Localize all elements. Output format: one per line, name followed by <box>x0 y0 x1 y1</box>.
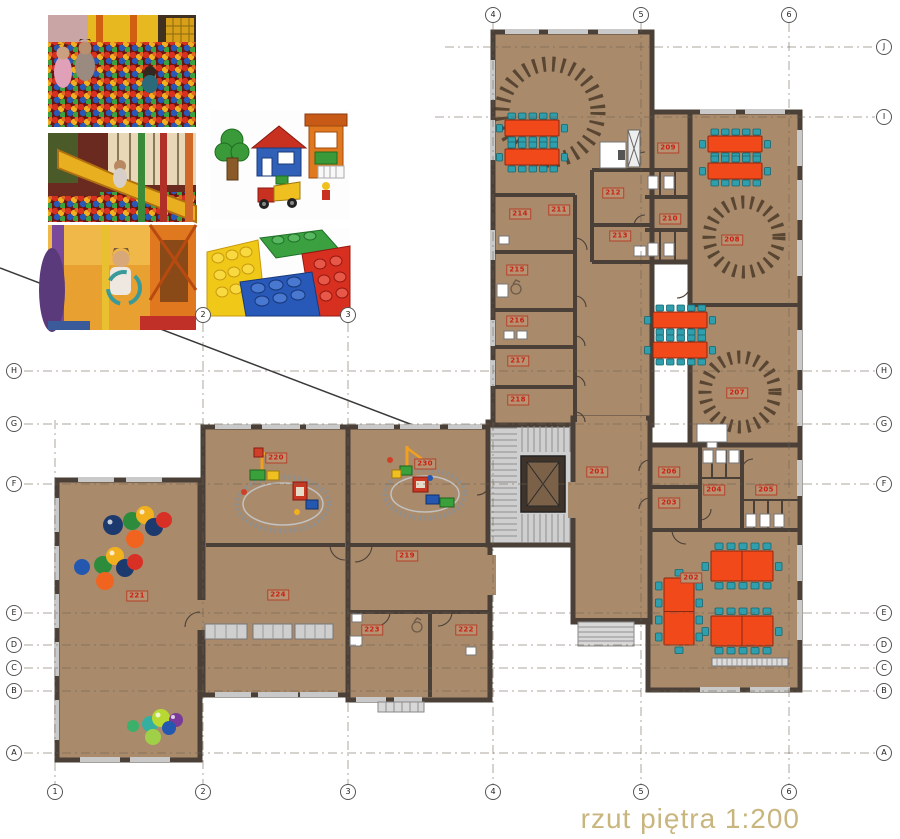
room-label-201: 201 <box>586 467 608 478</box>
room-label-202: 202 <box>680 573 702 584</box>
grid-marker-6: 6 <box>781 784 797 800</box>
shaft <box>628 130 640 167</box>
room-label-221: 221 <box>126 591 148 602</box>
grid-marker-4: 4 <box>485 7 501 23</box>
grid-marker-D: D <box>6 637 22 653</box>
entrance-steps-south <box>578 622 634 646</box>
room-label-224: 224 <box>267 590 289 601</box>
plan-drawing <box>0 0 900 839</box>
grid-marker-3: 3 <box>340 784 356 800</box>
room-label-216: 216 <box>506 316 528 327</box>
grid-marker-A: A <box>876 745 892 761</box>
grid-marker-4: 4 <box>485 784 501 800</box>
ball-pit-children-photo <box>48 15 196 127</box>
room-label-206: 206 <box>658 467 680 478</box>
grid-marker-H: H <box>6 363 22 379</box>
grid-marker-1: 1 <box>47 784 63 800</box>
grid-marker-J: J <box>876 39 892 55</box>
room-label-209: 209 <box>657 143 679 154</box>
grid-marker-6: 6 <box>781 7 797 23</box>
grid-marker-E: E <box>876 605 892 621</box>
room-label-212: 212 <box>602 188 624 199</box>
benches-224 <box>205 624 333 639</box>
grid-marker-A: A <box>6 745 22 761</box>
room-label-215: 215 <box>506 265 528 276</box>
table-row <box>645 305 716 335</box>
grid-marker-5: 5 <box>633 784 649 800</box>
room-label-213: 213 <box>609 231 631 242</box>
table-row <box>645 335 716 365</box>
room-label-219: 219 <box>396 551 418 562</box>
room-label-220: 220 <box>265 453 287 464</box>
room-label-203: 203 <box>658 498 680 509</box>
slide-ball-pool-photo <box>48 133 196 222</box>
grid-marker-G: G <box>6 416 22 432</box>
room-label-217: 217 <box>507 356 529 367</box>
radiator-202 <box>712 658 788 666</box>
grid-marker-B: B <box>6 683 22 699</box>
room-label-222: 222 <box>455 625 477 636</box>
grid-marker-E: E <box>6 605 22 621</box>
room-label-210: 210 <box>659 214 681 225</box>
grid-marker-B: B <box>876 683 892 699</box>
room-label-218: 218 <box>507 395 529 406</box>
grid-marker-3: 3 <box>340 307 356 323</box>
room-label-207: 207 <box>726 388 748 399</box>
grid-marker-2: 2 <box>195 307 211 323</box>
grid-marker-C: C <box>876 660 892 676</box>
room-label-208: 208 <box>721 235 743 246</box>
teacher-desk-211 <box>600 142 626 168</box>
room-label-205: 205 <box>755 485 777 496</box>
room-label-204: 204 <box>703 485 725 496</box>
grid-marker-H: H <box>876 363 892 379</box>
grid-marker-5: 5 <box>633 7 649 23</box>
grid-marker-G: G <box>876 416 892 432</box>
room-label-211: 211 <box>548 205 570 216</box>
room-label-223: 223 <box>361 625 383 636</box>
room-label-214: 214 <box>509 209 531 220</box>
duplo-blocks-set-photo <box>210 110 350 220</box>
grid-marker-F: F <box>6 476 22 492</box>
sheet-caption: rzut piętra 1:200 <box>581 803 800 835</box>
grid-marker-C: C <box>6 660 22 676</box>
photos <box>39 15 350 332</box>
grid-marker-D: D <box>876 637 892 653</box>
grid-marker-I: I <box>876 109 892 125</box>
floor-plan-sheet: 2012022032042052062072082092102112122132… <box>0 0 900 839</box>
grid-marker-2: 2 <box>195 784 211 800</box>
grid-marker-F: F <box>876 476 892 492</box>
entrance-steps-west-wing <box>378 702 424 712</box>
play-structure-child-photo <box>39 225 196 332</box>
room-label-230: 230 <box>414 459 436 470</box>
large-building-blocks-photo <box>207 228 350 318</box>
